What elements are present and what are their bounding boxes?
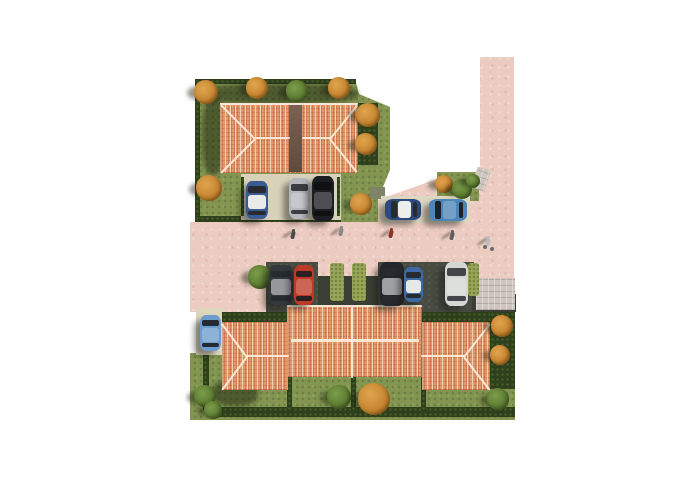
pedestrian-1-head (292, 229, 295, 232)
car-row2-red-roof (296, 279, 312, 294)
cyclist-1-wheel-front (483, 245, 487, 249)
tree-orange-3 (328, 77, 350, 99)
car-row2-dark-suv-rear-window (271, 296, 290, 300)
tree-orange-5 (355, 133, 377, 155)
car-row2-white-rear-window (447, 296, 465, 301)
car-roadside-steelblue-windshield (435, 201, 441, 219)
tree-orange-11 (490, 345, 510, 365)
car-row2-dark-suv-roof (271, 279, 290, 294)
tree-orange-1 (194, 80, 218, 104)
car-roadside-steelblue (429, 199, 467, 221)
car-row2-white-roof (447, 278, 465, 295)
car-bottom-lightblue-windshield (202, 320, 220, 326)
tree-orange-10 (491, 315, 513, 337)
car-row2-blue-white-top-windshield (406, 272, 422, 278)
car-row2-white (445, 262, 468, 306)
hedge-plot-top-southwest (195, 216, 242, 222)
parking-post-right (337, 177, 340, 216)
car-roadside-steelblue-roof (443, 201, 457, 219)
car-row1-black (312, 176, 334, 221)
car-bottom-lightblue (200, 315, 221, 351)
car-row2-black-rear-window (382, 296, 401, 301)
car-row2-black (380, 262, 404, 306)
car-row2-blue-white-top-roof (406, 280, 421, 293)
car-roadside-darkblue-white-top (385, 199, 421, 220)
car-roadside-darkblue-white-top-windshield (391, 201, 397, 218)
ridge-left-wing-main (246, 355, 289, 357)
car-row1-silver-windshield (291, 184, 309, 191)
hedge-bay-divider-3 (468, 263, 479, 296)
car-row1-black-windshield (314, 182, 332, 190)
ridge-top-right (302, 137, 331, 139)
car-row1-silver (289, 178, 310, 219)
car-row2-blue-white-top (404, 267, 423, 302)
cyclist-1-head (487, 236, 490, 239)
car-row1-blue-white-top-roof (248, 195, 266, 209)
bush-green-6 (327, 385, 351, 409)
car-row2-red-windshield (296, 271, 313, 278)
car-row2-black-windshield (382, 268, 402, 275)
paver-entry-pad (476, 278, 515, 310)
ridge-center-main (291, 339, 419, 342)
cyclist-1-wheel-rear (490, 247, 494, 251)
ridge-top-left (255, 137, 290, 139)
car-roadside-steelblue-rear-window (459, 202, 463, 219)
building-top-roof-valley (289, 104, 302, 172)
bush-green-5 (204, 401, 222, 419)
car-row1-black-rear-window (314, 211, 332, 216)
tree-orange-6 (196, 175, 222, 201)
bush-green-7 (487, 388, 509, 410)
car-row1-black-roof (314, 192, 332, 209)
car-bottom-lightblue-rear-window (202, 343, 219, 347)
car-bottom-lightblue-roof (202, 328, 219, 342)
pedestrian-4-head (451, 230, 454, 233)
ridge-center-eave (287, 305, 422, 307)
car-row2-dark-suv-windshield (271, 271, 291, 278)
parking-post-left (241, 177, 244, 216)
road-main (0, 0, 700, 495)
tree-orange-9 (358, 383, 390, 415)
car-row1-silver-roof (291, 193, 308, 209)
ridge-right-wing-main (421, 355, 465, 357)
car-row1-silver-rear-window (291, 210, 308, 215)
car-row2-white-windshield (447, 268, 466, 275)
ridge-center-party-wall (351, 307, 353, 378)
car-roadside-darkblue-white-top-rear-window (413, 202, 417, 218)
hedge-bay-divider-1 (330, 263, 344, 301)
pedestrian-3-head (390, 228, 393, 231)
tree-green-1 (286, 80, 308, 102)
car-row2-blue-white-top-rear-window (406, 294, 421, 298)
tree-orange-4 (356, 103, 380, 127)
pedestrian-2-head (340, 226, 343, 229)
tree-orange-7 (350, 193, 372, 215)
car-row1-blue-white-top-windshield (248, 186, 266, 192)
car-roadside-darkblue-white-top-roof (398, 201, 411, 218)
site-plan-rendering (0, 0, 700, 495)
bush-green-2 (466, 174, 480, 188)
tree-orange-2 (246, 77, 268, 99)
car-row1-blue-white-top (246, 181, 268, 219)
car-row2-dark-suv (269, 265, 293, 305)
car-row2-red-rear-window (296, 296, 312, 300)
car-row2-black-roof (382, 278, 401, 295)
ridge-top-eave (220, 103, 358, 105)
car-row2-red (294, 265, 314, 305)
car-row1-blue-white-top-rear-window (248, 211, 266, 215)
hedge-bay-divider-2 (352, 263, 366, 301)
